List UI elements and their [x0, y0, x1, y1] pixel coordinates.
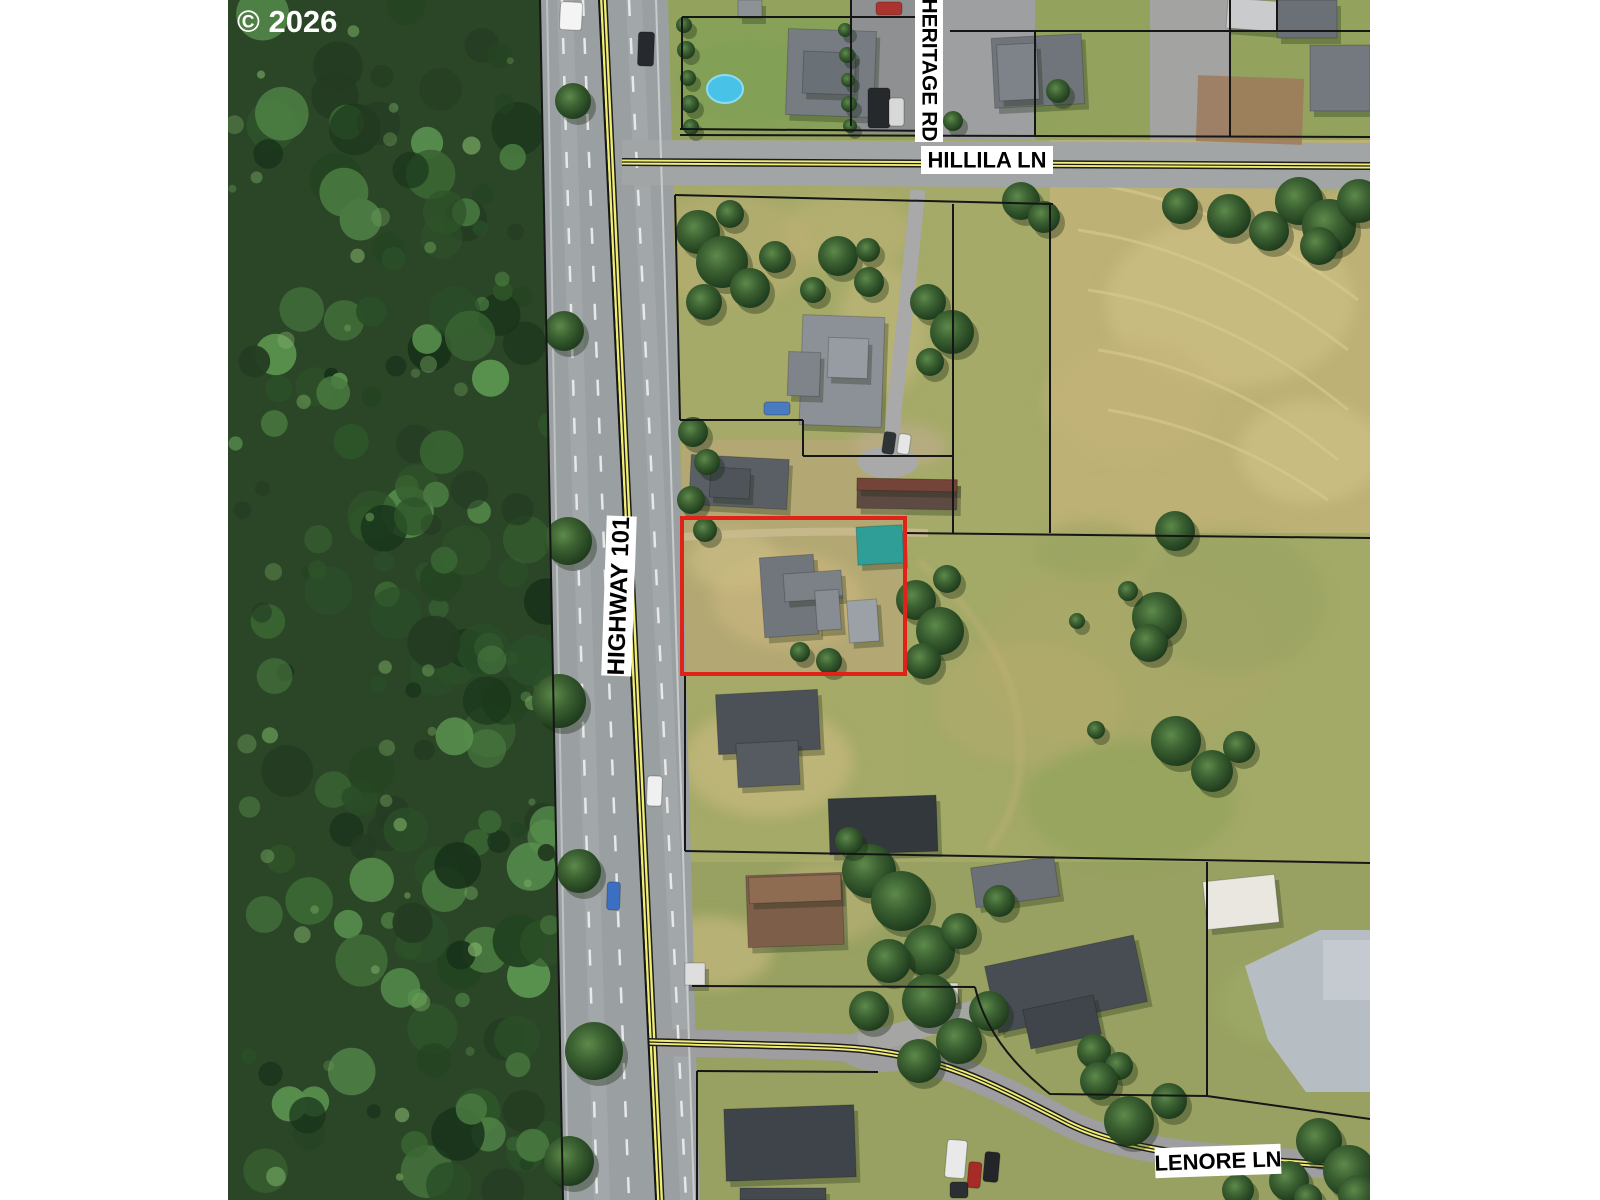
vehicle: [637, 32, 654, 67]
tree: [933, 565, 961, 593]
tree: [678, 417, 708, 447]
tree: [1104, 1096, 1154, 1146]
tree: [676, 17, 692, 33]
tree: [759, 241, 791, 273]
tree: [983, 885, 1015, 917]
vehicle: [967, 1161, 982, 1188]
tree: [677, 486, 705, 514]
tree: [532, 674, 586, 728]
tree: [905, 643, 941, 679]
building-roof: [1203, 874, 1280, 929]
tree: [555, 83, 591, 119]
building-roof: [1277, 0, 1337, 38]
tree: [916, 348, 944, 376]
tree: [1087, 721, 1105, 739]
tree: [790, 642, 810, 662]
road-label-text: HIGHWAY 101: [603, 516, 636, 676]
building-roof: [736, 740, 800, 787]
road-label-text: LENORE LN: [1154, 1146, 1282, 1175]
building-roof: [685, 963, 705, 985]
tree: [816, 648, 842, 674]
forest: [228, 0, 581, 1200]
vehicle: [882, 431, 897, 454]
building-roof: [857, 478, 957, 492]
vehicle: [897, 433, 912, 454]
tree: [941, 913, 977, 949]
vehicle: [607, 882, 621, 910]
road-label-heritage-rd: HERITAGE RD: [915, 0, 943, 142]
road-label-lenore-ln: LENORE LN: [1154, 1144, 1282, 1178]
tree: [841, 73, 855, 87]
tree: [902, 974, 956, 1028]
screenshot-root: HIGHWAY 101 HERITAGE RD HILLILA LN LENOR…: [0, 0, 1600, 1200]
road-label-highway-101: HIGHWAY 101: [601, 516, 637, 677]
vehicle: [868, 88, 890, 128]
building-roof: [1310, 45, 1370, 111]
tree: [1151, 1083, 1187, 1119]
tree: [871, 871, 931, 931]
tree: [1300, 227, 1338, 265]
tree: [943, 111, 963, 131]
tree: [841, 96, 857, 112]
vehicle: [646, 776, 662, 807]
tree: [849, 991, 889, 1031]
tree: [897, 1039, 941, 1083]
vehicle: [889, 98, 904, 126]
gravel-patio: [1196, 75, 1304, 145]
tree: [800, 277, 826, 303]
tree: [1162, 188, 1198, 224]
tree: [867, 939, 911, 983]
building-roof: [724, 1105, 856, 1181]
building-roof: [787, 351, 821, 396]
tree: [565, 1022, 623, 1080]
tree: [557, 849, 601, 893]
copyright-watermark: © 2026: [237, 4, 337, 39]
tree: [1151, 716, 1201, 766]
tree: [681, 95, 699, 113]
building-roof: [847, 599, 880, 643]
road-label-hillila-ln: HILLILA LN: [921, 146, 1053, 174]
tree: [544, 1136, 594, 1186]
tree: [686, 284, 722, 320]
tree: [683, 119, 699, 135]
building-roof: [815, 589, 842, 631]
tree: [693, 518, 717, 542]
vehicle: [559, 1, 582, 30]
tree: [1207, 194, 1251, 238]
vehicle: [944, 1139, 967, 1179]
tree: [730, 268, 770, 308]
building-roof: [1323, 940, 1370, 1000]
aerial-map-image: HIGHWAY 101 HERITAGE RD HILLILA LN LENOR…: [228, 0, 1370, 1200]
tree: [839, 47, 855, 63]
road-label-text: HERITAGE RD: [918, 0, 941, 142]
building-roof: [740, 1188, 826, 1200]
building-roof: [738, 0, 762, 18]
tree: [835, 827, 863, 855]
tree: [1046, 79, 1070, 103]
tree: [1130, 624, 1168, 662]
vehicle: [876, 2, 902, 15]
building-roof: [997, 43, 1040, 101]
vehicle: [983, 1151, 1001, 1182]
tree: [1069, 613, 1085, 629]
tree: [838, 23, 852, 37]
tree: [1223, 731, 1255, 763]
building-roof: [827, 337, 868, 378]
tree: [1118, 581, 1138, 601]
building-roof: [856, 525, 904, 565]
building-roof: [749, 874, 842, 903]
tree: [716, 200, 744, 228]
tree: [854, 267, 884, 297]
tree: [856, 238, 880, 262]
tree: [544, 311, 584, 351]
swimming-pool: [707, 75, 743, 103]
vehicle: [950, 1182, 968, 1198]
tree: [694, 449, 720, 475]
road-label-text: HILLILA LN: [928, 148, 1047, 173]
tree: [1028, 201, 1060, 233]
vehicle: [764, 402, 790, 415]
tree: [818, 236, 858, 276]
tree: [677, 41, 695, 59]
tree: [1155, 511, 1195, 551]
